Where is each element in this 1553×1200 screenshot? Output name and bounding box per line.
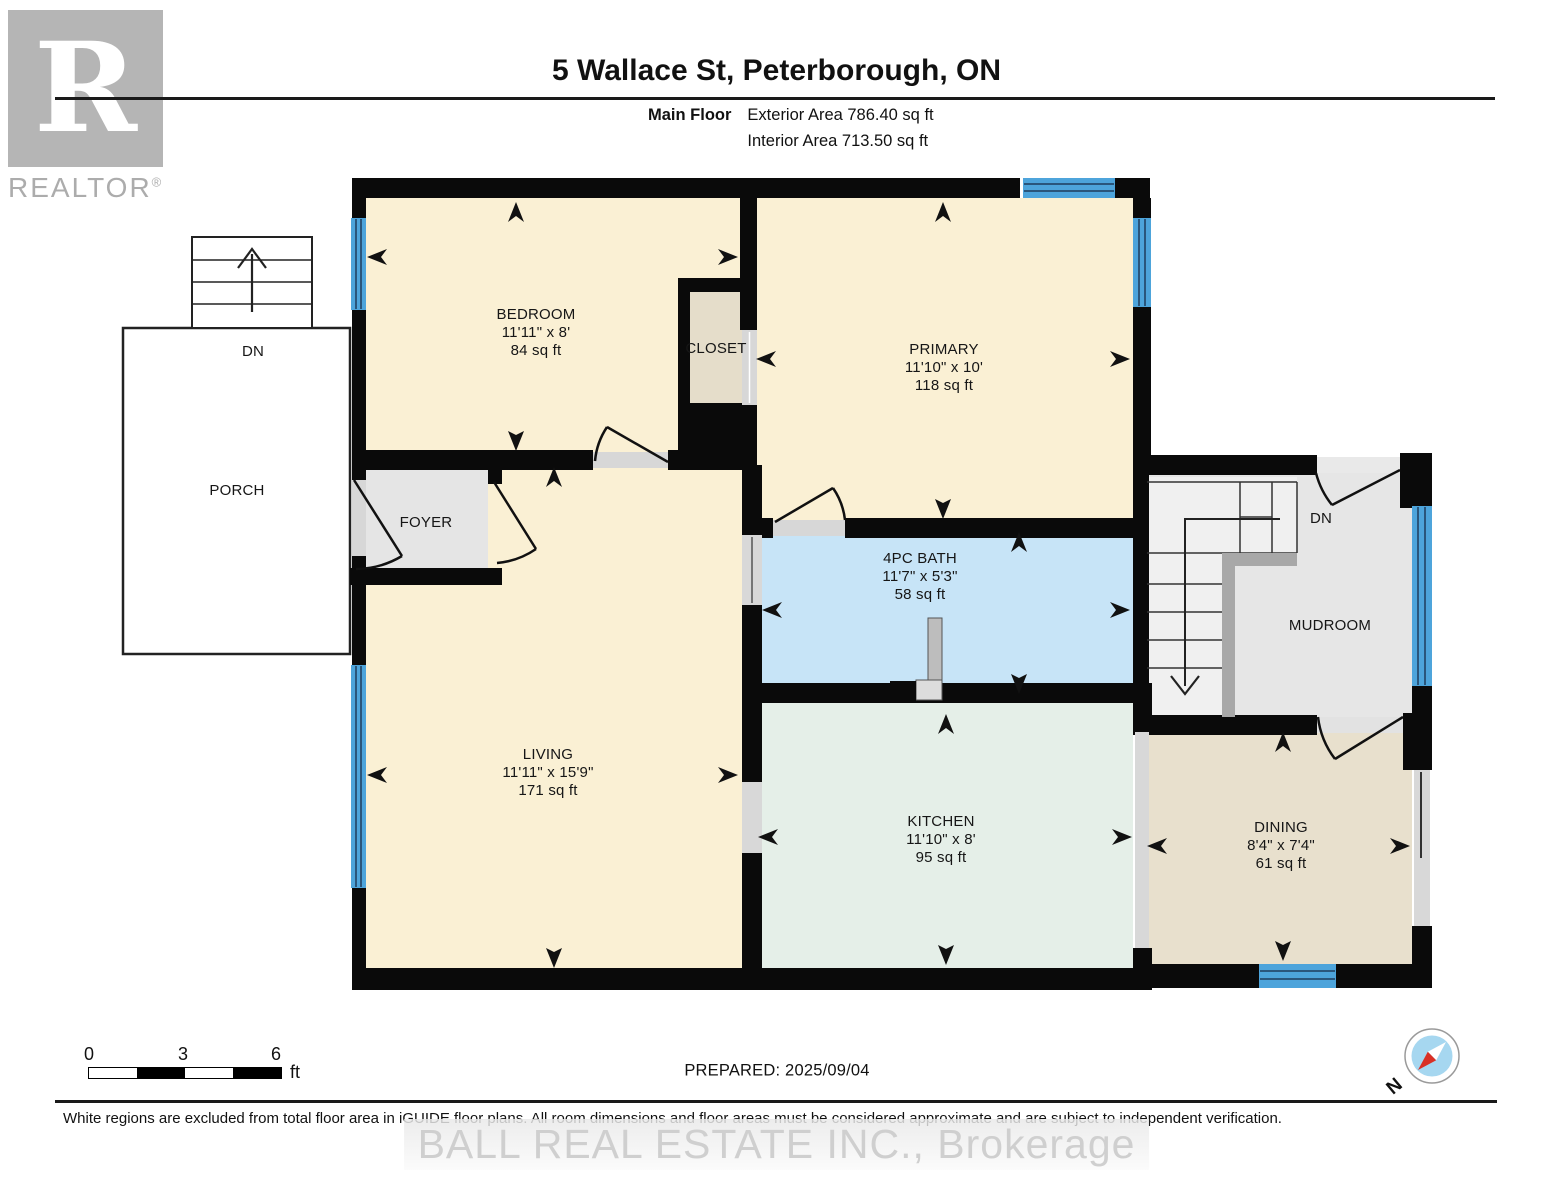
room-label-primary: PRIMARY 11'10" x 10' 118 sq ft <box>905 341 983 395</box>
room-label-closet: CLOSET <box>685 340 746 358</box>
stairs-down-label-mudroom: DN <box>1310 510 1332 528</box>
scale-segment <box>137 1068 185 1078</box>
room-label-dining: DINING 8'4" x 7'4" 61 sq ft <box>1247 819 1315 873</box>
room-label-mudroom: MUDROOM <box>1289 617 1371 635</box>
scale-tick-6: 6 <box>271 1044 281 1065</box>
room-label-kitchen: KITCHEN 11'10" x 8' 95 sq ft <box>906 813 976 867</box>
exterior-area: Exterior Area 786.40 sq ft <box>747 106 933 125</box>
room-label-living: LIVING 11'11" x 15'9" 171 sq ft <box>502 746 593 800</box>
stairs-down-label-porch: DN <box>242 343 264 361</box>
floor-summary: Main Floor Exterior Area 786.40 sq ft In… <box>648 106 934 151</box>
realtor-logo: R <box>8 10 163 167</box>
floor-plan-page: R REALTOR® 5 Wallace St, Peterborough, O… <box>0 0 1553 1200</box>
room-label-bath: 4PC BATH 11'7" x 5'3" 58 sq ft <box>882 550 957 604</box>
room-label-porch: PORCH <box>209 482 264 500</box>
room-label-foyer: FOYER <box>400 514 453 532</box>
scale-segment <box>233 1068 281 1078</box>
floor-plan-drawing <box>0 0 1553 1200</box>
page-title: 5 Wallace St, Peterborough, ON <box>552 54 1001 88</box>
interior-area: Interior Area 713.50 sq ft <box>747 132 933 151</box>
porch-outline <box>123 237 350 654</box>
room-label-bedroom: BEDROOM 11'11" x 8' 84 sq ft <box>497 306 576 360</box>
realtor-logo-letter: R <box>34 27 137 151</box>
scale-tick-3: 3 <box>178 1044 188 1065</box>
title-divider <box>55 97 1495 100</box>
realtor-wordmark: REALTOR® <box>8 172 173 204</box>
registered-mark: ® <box>152 175 164 190</box>
scale-tick-0: 0 <box>84 1044 94 1065</box>
footer-divider <box>55 1100 1497 1103</box>
scale-segment <box>89 1068 137 1078</box>
brokerage-watermark: BALL REAL ESTATE INC., Brokerage <box>404 1119 1150 1170</box>
prepared-date: PREPARED: 2025/09/04 <box>684 1062 869 1081</box>
scale-unit: ft <box>290 1062 300 1083</box>
floor-label: Main Floor <box>648 106 731 151</box>
scale-bar <box>88 1067 282 1079</box>
scale-segment <box>185 1068 233 1078</box>
